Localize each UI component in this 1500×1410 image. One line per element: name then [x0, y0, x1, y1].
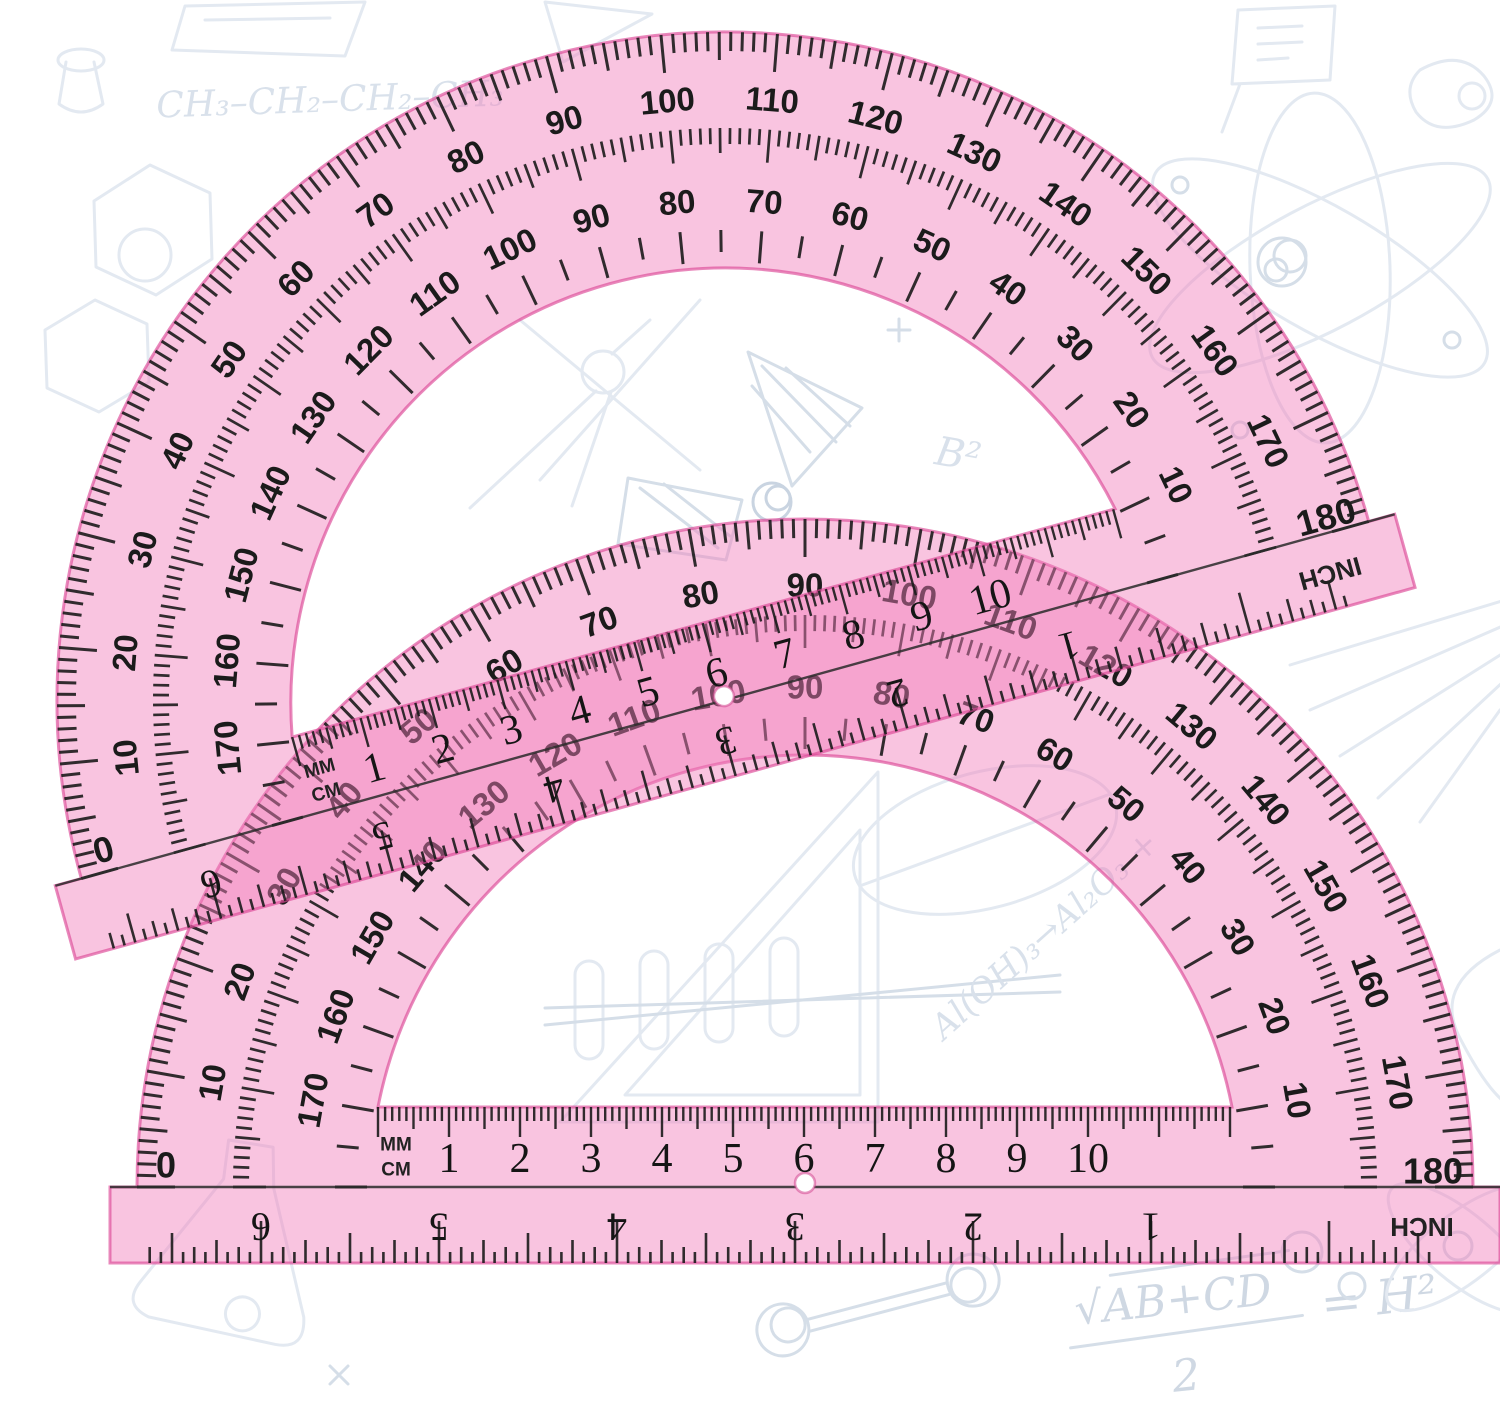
cm-number: 1	[439, 1136, 460, 1182]
cm-number: 5	[723, 1136, 744, 1182]
inch-number: 5	[429, 1205, 449, 1250]
degree-label-inner: 160	[206, 632, 247, 690]
degree-label-inner: 80	[657, 182, 697, 222]
inch-number: 3	[785, 1205, 805, 1250]
cm-number: 4	[652, 1136, 673, 1182]
degree-label-outer: 10	[106, 738, 146, 778]
cm-number: 8	[936, 1136, 957, 1182]
inch-number: 4	[607, 1205, 627, 1250]
degree-label-outer: 20	[105, 633, 145, 673]
cm-number: 6	[794, 1136, 815, 1182]
degree-label-180: 180	[1403, 1151, 1463, 1192]
b-squared-doodle: B²	[931, 428, 985, 481]
degree-label-outer: 110	[744, 79, 800, 120]
degree-label-outer: 10	[191, 1061, 234, 1104]
inch-number: 6	[251, 1205, 271, 1250]
cm-number: 7	[865, 1136, 886, 1182]
cm-unit-label: CM	[381, 1160, 411, 1181]
degree-label-inner: 10	[1276, 1079, 1319, 1122]
product-photo: CH₃–CH₂–CH₂–CH₃	[0, 0, 1500, 1410]
degree-label-outer: 100	[638, 80, 696, 122]
inch-number: 2	[963, 1205, 983, 1250]
scene-svg: CH₃–CH₂–CH₂–CH₃	[0, 0, 1500, 1410]
cm-number: 2	[510, 1136, 531, 1182]
mm-unit-label: MM	[380, 1135, 412, 1156]
degree-label-inner: 170	[206, 719, 248, 777]
cm-number: 10	[1067, 1136, 1109, 1182]
degree-label-inner: 70	[744, 182, 784, 222]
degree-label-zero: 0	[156, 1145, 176, 1186]
cm-number: 9	[1007, 1136, 1028, 1182]
sqrt-denominator: 2	[1169, 1349, 1203, 1403]
degree-label-outer: 80	[679, 573, 722, 616]
inch-number: 1	[1141, 1205, 1161, 1250]
inch-unit-label: INCH	[1390, 1212, 1454, 1242]
cm-number: 3	[581, 1136, 602, 1182]
